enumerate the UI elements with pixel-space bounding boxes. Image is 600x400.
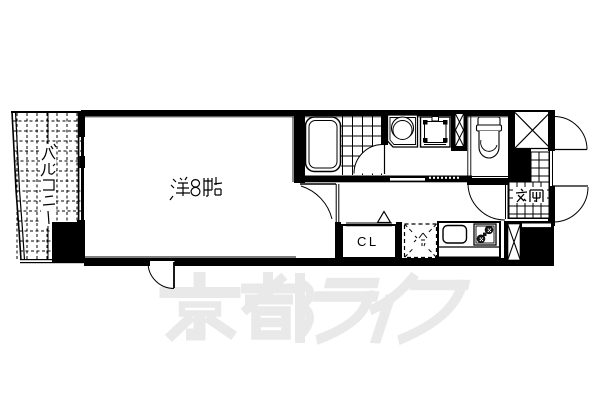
svg-text:CL: CL xyxy=(357,234,379,249)
